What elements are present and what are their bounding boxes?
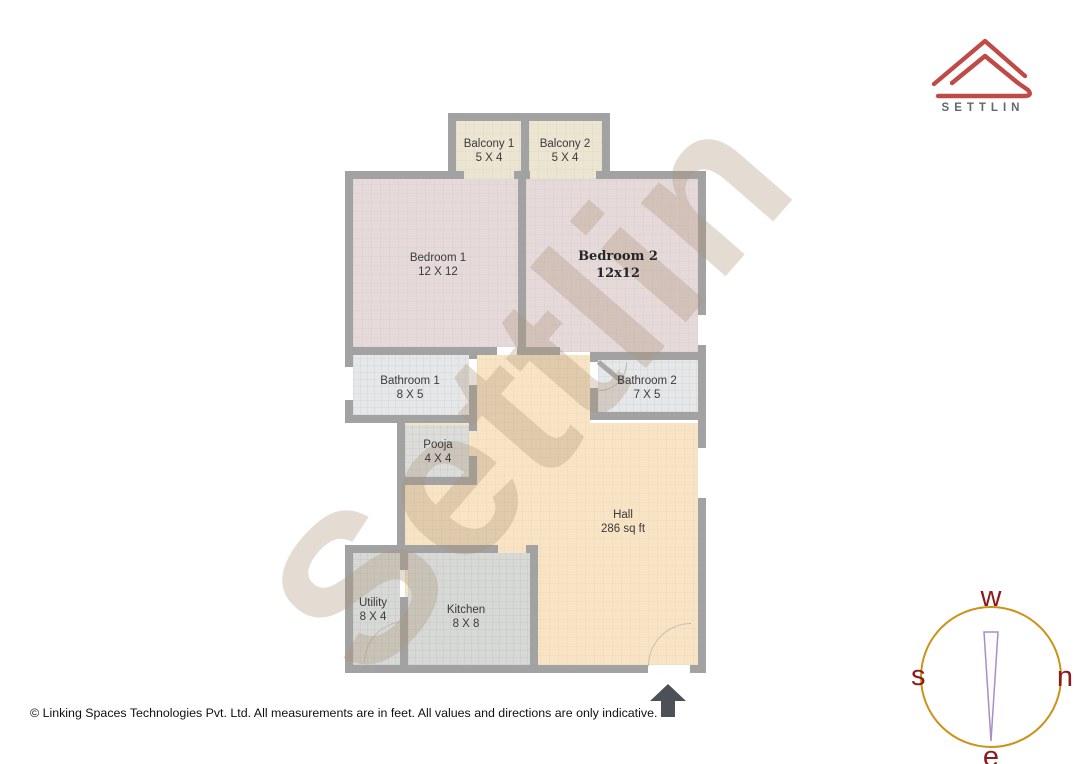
wall: [590, 352, 598, 362]
wall: [698, 345, 706, 448]
room-label-bedroom1: Bedroom 1 12 X 12: [410, 251, 466, 279]
wall: [400, 597, 408, 665]
floor-plan-page: Settlin Balcony 1 5 X 4 Balcony 2 5 X 4 …: [0, 0, 1080, 764]
room-label-bathroom2: Bathroom 2 7 X 5: [617, 374, 676, 402]
wall: [397, 477, 477, 485]
room-dims: 7 X 5: [617, 388, 676, 402]
wall: [530, 545, 538, 665]
compass-needle-icon: [984, 632, 998, 741]
wall: [448, 113, 456, 179]
compass-west-label: w: [912, 583, 1070, 612]
wall: [596, 171, 610, 179]
settlin-logo: SETTLIN: [928, 30, 1043, 122]
wall: [469, 423, 477, 431]
room-dims: 5 X 4: [464, 151, 515, 165]
room-name: Balcony 1: [464, 137, 515, 151]
wall: [698, 171, 706, 315]
room-dims: 8 X 8: [447, 617, 485, 631]
wall: [400, 553, 408, 570]
wall: [469, 355, 477, 359]
room-name: Bathroom 2: [617, 374, 676, 388]
hall-corridor-floor: [477, 355, 590, 423]
room-label-bedroom2: Bedroom 2 12x12: [578, 248, 658, 282]
compass-south-label: s: [911, 662, 926, 691]
wall: [448, 113, 610, 121]
room-name: Balcony 2: [540, 137, 591, 151]
room-dims: 286 sq ft: [601, 522, 645, 536]
room-label-balcony2: Balcony 2 5 X 4: [540, 137, 591, 165]
room-dims: 12 X 12: [410, 265, 466, 279]
room-label-balcony1: Balcony 1 5 X 4: [464, 137, 515, 165]
wall: [345, 545, 498, 553]
room-name: Bathroom 1: [380, 374, 439, 388]
settlin-logo-icon: [928, 30, 1043, 102]
room-name: Kitchen: [447, 603, 485, 617]
wall: [521, 113, 529, 179]
room-name: Bedroom 2: [578, 248, 658, 265]
compass-north-label: n: [1057, 663, 1073, 692]
wall: [345, 665, 648, 673]
room-label-kitchen: Kitchen 8 X 8: [447, 603, 485, 631]
wall: [345, 545, 353, 673]
room-dims: 5 X 4: [540, 151, 591, 165]
wall: [345, 171, 448, 179]
wall: [590, 412, 706, 420]
wall: [602, 113, 610, 179]
wall: [590, 352, 706, 360]
settlin-logo-wordmark: SETTLIN: [928, 102, 1038, 114]
room-name: Pooja: [423, 438, 452, 452]
room-label-utility: Utility 8 X 4: [359, 596, 387, 624]
room-label-pooja: Pooja 4 X 4: [423, 438, 452, 466]
compass-east-label: e: [912, 743, 1070, 764]
wall: [610, 171, 706, 179]
room-name: Bedroom 1: [410, 251, 466, 265]
wall: [518, 171, 526, 355]
wall: [345, 347, 497, 355]
wall: [517, 347, 560, 355]
room-dims: 8 X 5: [380, 388, 439, 402]
room-name: Hall: [601, 508, 645, 522]
wall: [698, 498, 706, 673]
room-label-bathroom1: Bathroom 1 8 X 5: [380, 374, 439, 402]
wall: [345, 415, 477, 423]
compass-rose: w s n e: [912, 586, 1070, 764]
room-dims: 8 X 4: [359, 610, 387, 624]
disclaimer-text: © Linking Spaces Technologies Pvt. Ltd. …: [30, 706, 657, 720]
room-dims: 4 X 4: [423, 452, 452, 466]
room-label-hall: Hall 286 sq ft: [601, 508, 645, 536]
wall: [448, 171, 464, 179]
room-name: Utility: [359, 596, 387, 610]
wall: [345, 171, 353, 367]
room-dims: 12x12: [578, 265, 658, 282]
wall: [690, 665, 706, 673]
